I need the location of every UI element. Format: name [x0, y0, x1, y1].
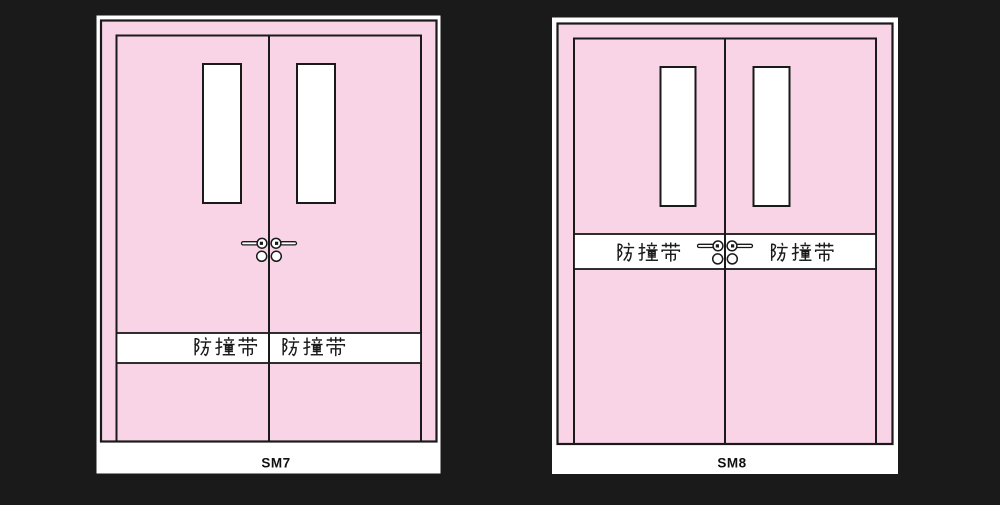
svg-text:SM8: SM8: [717, 456, 746, 471]
svg-text:SM7: SM7: [261, 456, 290, 471]
